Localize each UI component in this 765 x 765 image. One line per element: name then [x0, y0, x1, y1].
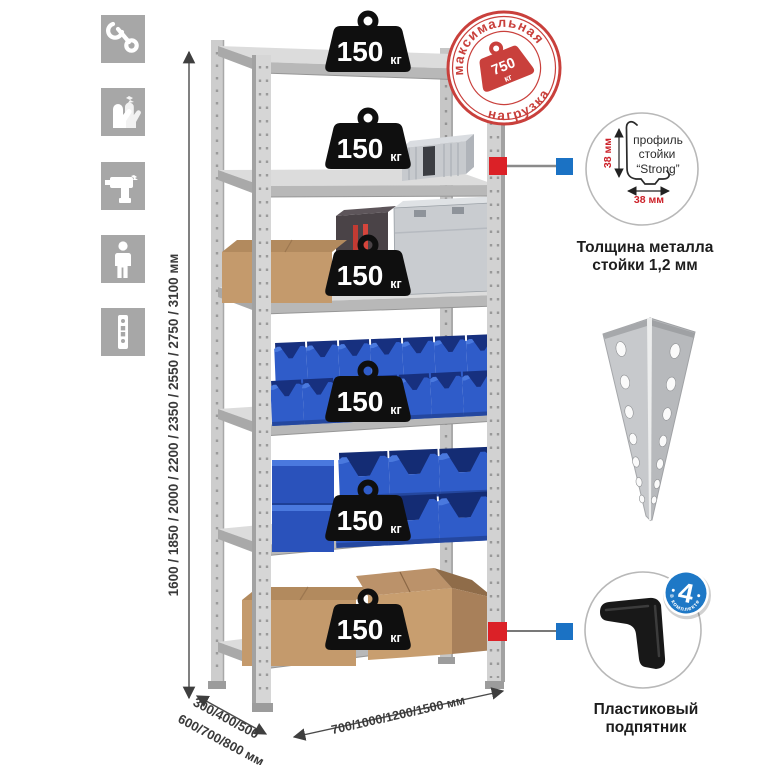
post-profile-detail: 38 мм 38 мм профиль стойки “Strong” Толщ…: [577, 113, 714, 274]
connector-blue-square-bottom: [556, 623, 573, 640]
weight-4-unit: кг: [390, 403, 401, 417]
connector-red-square-bottom: [488, 622, 507, 641]
height-dimension-label: 1600 / 1850 / 2000 / 2200 / 2350 / 2550 …: [166, 254, 181, 597]
width-dimension: 700/1000/1200/1500 мм: [294, 691, 503, 737]
weight-5-unit: кг: [390, 522, 401, 536]
weight-3-unit: кг: [390, 277, 401, 291]
weight-badge-1: 150 кг: [325, 14, 411, 73]
weight-3-value: 150: [337, 260, 384, 291]
profile-dim-height: 38 мм: [602, 138, 614, 168]
profile-label-2: стойки: [639, 147, 676, 161]
weight-4-value: 150: [337, 386, 384, 417]
angle-post-image: [603, 318, 695, 520]
connector-red-square-top: [489, 157, 507, 175]
plastic-foot-detail: 4 в комплекте Пластиковый подпятник: [585, 566, 716, 736]
weight-1-value: 150: [337, 36, 384, 67]
foot-caption-1: Пластиковый: [594, 701, 699, 718]
weight-6-unit: кг: [390, 631, 401, 645]
weight-6-value: 150: [337, 614, 384, 645]
weight-2-unit: кг: [390, 150, 401, 164]
connector-blue-square-top: [556, 158, 573, 175]
profile-caption-2: стойки 1,2 мм: [592, 257, 697, 274]
aluminum-case: [402, 134, 474, 181]
weight-1-unit: кг: [390, 53, 401, 67]
foot-caption-2: подпятник: [605, 719, 686, 736]
infographic-canvas: 1600 / 1850 / 2000 / 2200 / 2350 / 2550 …: [0, 0, 765, 765]
metal-case-silver: [394, 196, 500, 295]
blue-crate-stack: [272, 460, 334, 552]
weight-2-value: 150: [337, 133, 384, 164]
weight-badge-2: 150 кг: [325, 111, 411, 170]
width-dimension-label: 700/1000/1200/1500 мм: [330, 693, 466, 737]
profile-dim-width: 38 мм: [634, 194, 664, 206]
scene-illustration: 1600 / 1850 / 2000 / 2200 / 2350 / 2550 …: [0, 0, 765, 765]
profile-label-1: профиль: [633, 133, 683, 147]
weight-5-value: 150: [337, 505, 384, 536]
height-dimension: 1600 / 1850 / 2000 / 2200 / 2350 / 2550 …: [166, 52, 189, 698]
profile-caption-1: Толщина металла: [577, 239, 714, 256]
profile-label-3: “Strong”: [636, 162, 679, 176]
shelf-weights: 150 кг 150 кг 150 кг 150 кг 150 кг: [325, 14, 411, 651]
